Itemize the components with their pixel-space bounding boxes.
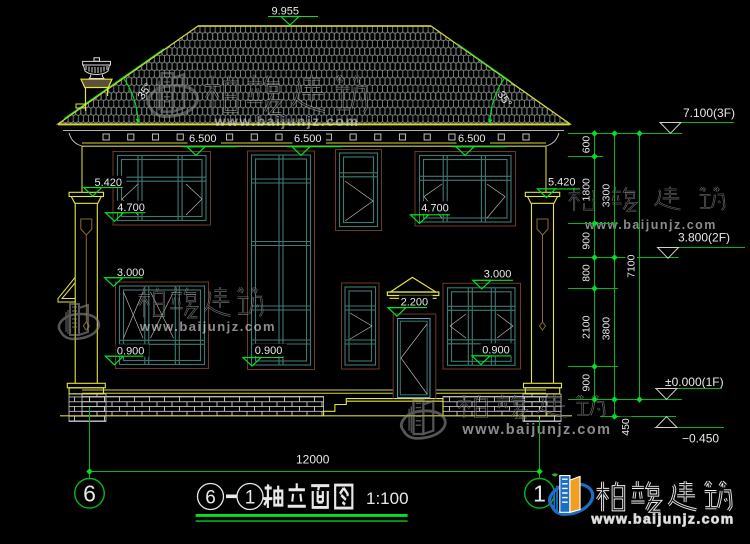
svg-text:1: 1 <box>533 481 546 507</box>
svg-text:6: 6 <box>83 481 96 507</box>
svg-text:3.800(2F): 3.800(2F) <box>678 231 730 245</box>
svg-text:www.baijunjz.com: www.baijunjz.com <box>461 422 611 438</box>
svg-text:2100: 2100 <box>581 315 593 339</box>
svg-text:1:100: 1:100 <box>366 489 409 508</box>
svg-text:900: 900 <box>581 232 593 250</box>
svg-text:3.000: 3.000 <box>484 269 512 281</box>
svg-text:12000: 12000 <box>296 453 330 467</box>
svg-text:1800: 1800 <box>581 178 593 202</box>
svg-text:800: 800 <box>581 264 593 282</box>
svg-text:1: 1 <box>245 488 256 509</box>
svg-text:www.baijunjz.com: www.baijunjz.com <box>590 511 734 527</box>
svg-text:6: 6 <box>205 488 216 509</box>
svg-text:4.700: 4.700 <box>421 203 449 215</box>
svg-text:7.100(3F): 7.100(3F) <box>683 106 735 120</box>
svg-text:5.420: 5.420 <box>548 177 576 189</box>
svg-text:www.baijunjz.com: www.baijunjz.com <box>139 319 276 334</box>
svg-text:3300: 3300 <box>601 184 613 208</box>
svg-text:3800: 3800 <box>601 317 613 341</box>
svg-text:6.500: 6.500 <box>458 133 486 145</box>
svg-text:9.955: 9.955 <box>272 6 300 18</box>
svg-text:www.baijunjz.com: www.baijunjz.com <box>214 113 360 129</box>
svg-text:900: 900 <box>581 374 593 392</box>
svg-text:7100: 7100 <box>626 254 638 278</box>
svg-text:±0.000(1F): ±0.000(1F) <box>665 375 724 389</box>
svg-text:6.500: 6.500 <box>189 133 217 145</box>
svg-text:6.500: 6.500 <box>294 133 322 145</box>
svg-text:0.900: 0.900 <box>482 345 510 357</box>
svg-text:600: 600 <box>581 136 593 154</box>
svg-text:0.900: 0.900 <box>255 345 283 357</box>
svg-text:−0.450: −0.450 <box>682 432 719 446</box>
svg-text:450: 450 <box>620 418 632 436</box>
svg-text:2.200: 2.200 <box>401 297 429 309</box>
